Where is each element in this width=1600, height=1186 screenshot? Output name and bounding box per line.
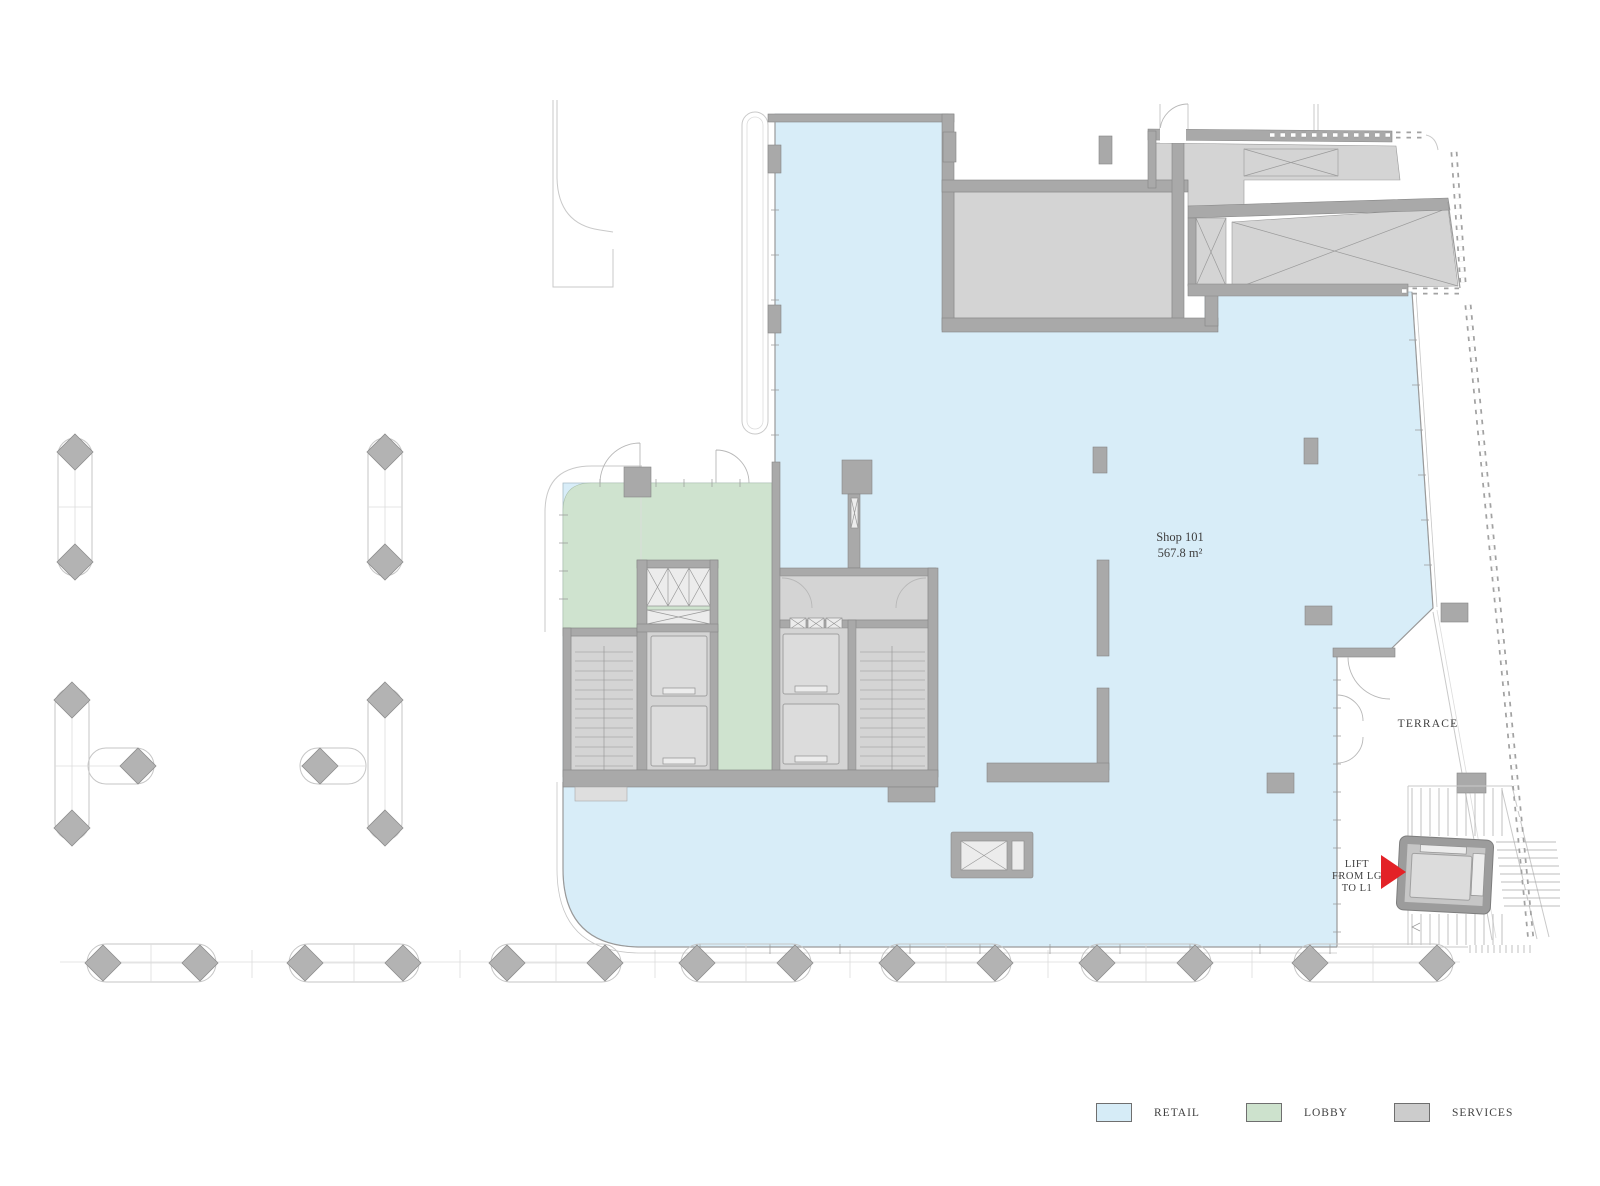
retail-swatch [1096,1103,1132,1122]
terrace-label: TERRACE [1398,718,1459,730]
escalator-track [742,112,768,434]
lift-note-line2: FROM LG [1332,871,1382,882]
shop-name-label: Shop 101 [1156,530,1204,544]
legend-item-lobby: LOBBY [1246,1103,1348,1122]
legend-label-lobby: LOBBY [1304,1107,1348,1119]
legend-item-services: SERVICES [1394,1103,1513,1122]
legend-label-retail: RETAIL [1154,1107,1200,1119]
lift-note-line1: LIFT [1345,859,1369,870]
void-x-room [1232,208,1458,290]
service-room-large [954,192,1172,318]
services-swatch [1394,1103,1430,1122]
shop-area-label: 567.8 m² [1158,546,1203,560]
legend-item-retail: RETAIL [1096,1103,1200,1122]
legend: RETAIL LOBBY SERVICES [1096,1103,1513,1122]
floor-plan-page: Shop 101 567.8 m² TERRACE LIFT FROM LG T… [0,0,1600,1186]
floor-plan-drawing: Shop 101 567.8 m² TERRACE LIFT FROM LG T… [0,0,1600,1186]
lift-note-line3: TO L1 [1342,883,1373,894]
terrace-lift [1396,836,1494,915]
service-room-core [780,576,928,620]
lobby-swatch [1246,1103,1282,1122]
legend-label-services: SERVICES [1452,1107,1513,1119]
terrace-area [1333,603,1560,947]
